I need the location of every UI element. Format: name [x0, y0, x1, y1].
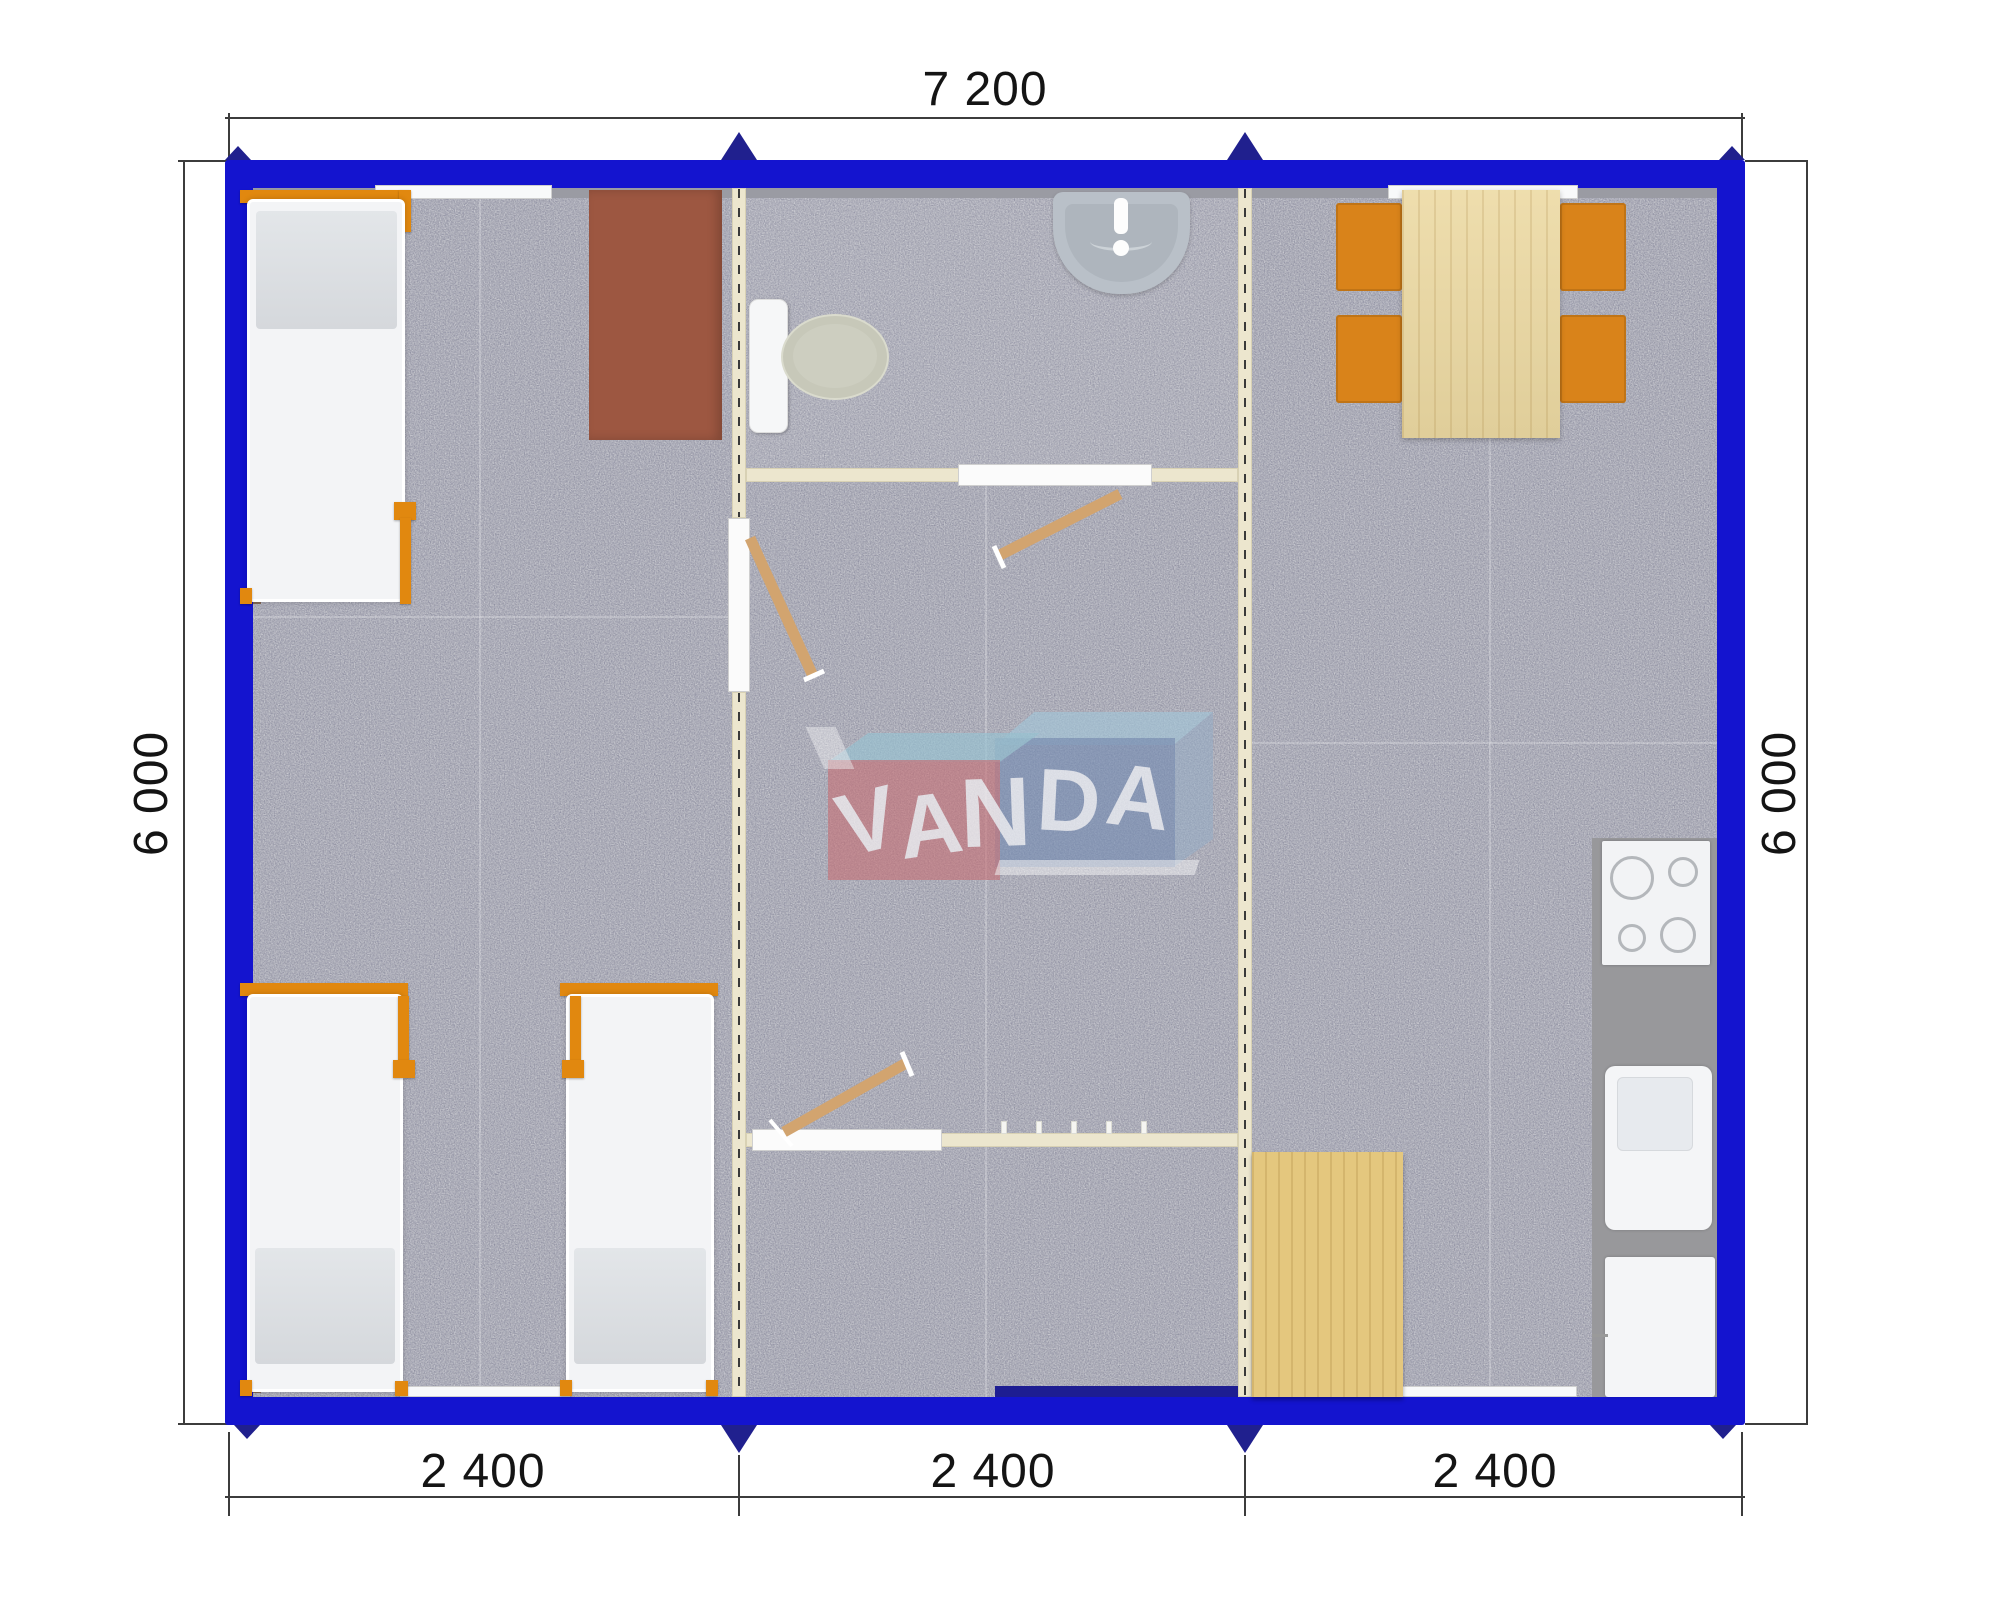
- dim-tick-bottom: [738, 1455, 740, 1516]
- carpet-seam: [985, 482, 987, 1397]
- wall-centerline: [738, 693, 740, 1396]
- cooktop-burner: [1668, 857, 1698, 887]
- logo-letter: N: [958, 762, 1032, 862]
- carpet-seam: [479, 188, 481, 1397]
- bed-frame-post: [398, 996, 409, 1062]
- dim-line-left: [183, 160, 185, 1425]
- door-opening-bathroom: [958, 464, 1152, 486]
- dim-line-top: [225, 117, 1745, 119]
- bed-frame-corner: [240, 1380, 252, 1396]
- cooktop-burner: [1610, 856, 1654, 900]
- corner-marker: [1710, 1425, 1736, 1439]
- cooktop-burner: [1618, 924, 1646, 952]
- bed-frame-post: [400, 518, 411, 604]
- dining-table: [1402, 190, 1560, 438]
- logo-letter: A: [1102, 749, 1176, 844]
- partition-stud: [1141, 1121, 1147, 1134]
- cabinet-handle: [1592, 1334, 1608, 1337]
- wood-floor-mat: [1252, 1152, 1403, 1397]
- window-bottom-right-module: [1387, 1386, 1577, 1397]
- dim-ext-right-bottom: [1745, 1423, 1808, 1425]
- bed-frame-corner: [560, 1380, 572, 1396]
- dim-label-module-1: 2 400: [383, 1448, 583, 1496]
- vanda-watermark-logo: V A N D A: [815, 705, 1220, 890]
- bed-pillow: [574, 1248, 706, 1364]
- logo-letter: A: [892, 777, 967, 873]
- bed-frame-corner: [706, 1380, 718, 1396]
- partition-stud: [1036, 1121, 1042, 1134]
- bed-frame-corner: [395, 1381, 408, 1396]
- wall-centerline: [738, 189, 740, 517]
- corner-marker: [1719, 146, 1745, 160]
- logo-letter: D: [1035, 755, 1103, 846]
- dim-ext-right-top: [1745, 160, 1808, 162]
- cooktop-burner: [1660, 917, 1696, 953]
- module-joint-marker: [721, 1425, 757, 1453]
- wall-centerline: [1244, 189, 1246, 1396]
- dim-ext-left-bottom: [178, 1423, 228, 1425]
- bed-pillow: [255, 1248, 395, 1364]
- bed-frame-post-cap: [393, 1060, 415, 1078]
- door-opening-hall: [752, 1129, 942, 1151]
- module-joint-marker: [721, 132, 757, 160]
- kitchen-cabinet: [1605, 1257, 1715, 1397]
- partition-stud: [1106, 1121, 1112, 1134]
- dining-chair: [1336, 203, 1402, 291]
- door-opening-left-bedroom: [728, 518, 750, 692]
- corner-marker: [234, 1425, 260, 1439]
- bed-frame-post-cap: [562, 1060, 584, 1078]
- dim-ext-left-top: [178, 160, 228, 162]
- sink-faucet-dot: [1113, 240, 1129, 256]
- floor-plan-canvas: 7 200 6 000 6 000: [0, 0, 2000, 1597]
- module-joint-marker: [1227, 1425, 1263, 1453]
- toilet-lid: [793, 324, 877, 388]
- kitchen-sink-basin: [1617, 1077, 1693, 1151]
- partition-wall-left-upper: [732, 188, 746, 518]
- dim-tick-bottom: [1741, 1432, 1743, 1516]
- dim-label-module-2: 2 400: [893, 1448, 1093, 1496]
- dim-label-top-width: 7 200: [835, 66, 1135, 114]
- window-bottom-left-module: [400, 1386, 570, 1397]
- dim-label-right-height: 6 000: [1756, 688, 1808, 898]
- dim-label-left-height: 6 000: [128, 688, 180, 898]
- carpet-seam: [1252, 742, 1717, 744]
- dim-tick-bottom: [228, 1432, 230, 1516]
- bed-frame-corner: [240, 588, 252, 604]
- dining-chair: [1336, 315, 1402, 403]
- partition-stud: [1001, 1121, 1007, 1134]
- dim-tick-bottom: [1244, 1455, 1246, 1516]
- module-joint-marker: [1227, 132, 1263, 160]
- corner-marker: [225, 146, 251, 160]
- dining-chair: [1560, 203, 1626, 291]
- partition-stud: [1071, 1121, 1077, 1134]
- partition-wall-right: [1238, 188, 1252, 1397]
- dim-label-module-3: 2 400: [1395, 1448, 1595, 1496]
- carpet-seam: [253, 616, 732, 618]
- dim-line-right: [1806, 160, 1808, 1425]
- bed-frame-post: [570, 996, 581, 1062]
- bed-pillow: [256, 211, 397, 329]
- partition-wall-left-lower: [732, 692, 746, 1397]
- desk: [589, 190, 722, 440]
- dining-chair: [1560, 315, 1626, 403]
- sink-faucet: [1114, 198, 1128, 234]
